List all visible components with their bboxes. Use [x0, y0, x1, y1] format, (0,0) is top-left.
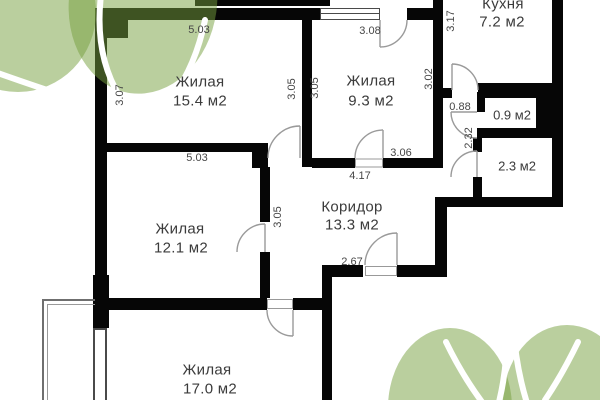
door-arc-room4: [267, 310, 293, 336]
dim-room1-right: 3.05: [286, 78, 298, 99]
room-area-3: 12.1 м2: [154, 240, 208, 257]
dim-room2-bottom: 3.06: [390, 147, 411, 159]
dim-corridor-top: 4.17: [349, 170, 370, 182]
dim-room2-right: 3.02: [423, 68, 435, 89]
dim-passage-width: 0.88: [449, 101, 470, 113]
room-name-2: Жилая: [347, 73, 396, 90]
room-area-1: 15.4 м2: [173, 93, 227, 110]
door-arc-kitchen: [452, 64, 478, 90]
door-arc-balcony: [380, 20, 407, 47]
room-name-1: Жилая: [176, 74, 225, 91]
dim-room3-right: 3.05: [272, 206, 284, 227]
door-leaf-entrance: [366, 267, 397, 276]
dim-kitchen-left: 3.17: [445, 10, 457, 31]
dim-room1-left: 3.07: [114, 84, 126, 105]
door-arc-room1: [268, 126, 300, 158]
kitchen-name: Кухня: [482, 0, 524, 13]
storage1-area: 0.9 м2: [493, 108, 531, 123]
dim-passage-height: 2.32: [463, 127, 475, 148]
door-arc-room3: [237, 224, 265, 252]
dim-room1-bottom: 5.03: [186, 152, 207, 164]
dim-corridor-bottom: 2.67: [341, 256, 362, 268]
corridor-name: Коридор: [321, 199, 382, 216]
door-leaf-room4: [268, 300, 293, 309]
door-arc-entrance: [365, 233, 397, 265]
floor-plan: Жилая 15.4 м2 Жилая 9.3 м2 Кухня 7.2 м2 …: [0, 0, 600, 400]
dim-room2-left: 3.05: [309, 77, 321, 98]
kitchen-area: 7.2 м2: [479, 14, 524, 31]
room-area-2: 9.3 м2: [348, 93, 393, 110]
room-name-3: Жилая: [156, 221, 205, 238]
door-symbols-layer: [0, 0, 600, 400]
storage2-area: 2.3 м2: [498, 159, 536, 174]
dim-room1-top: 5.03: [188, 24, 209, 36]
door-arc-storage2: [451, 151, 477, 177]
door-arc-room2: [355, 130, 383, 158]
door-leaf-room2: [356, 159, 383, 167]
dim-room2-top: 3.08: [359, 25, 380, 37]
room-name-4: Жилая: [183, 362, 232, 379]
corridor-area: 13.3 м2: [325, 217, 379, 234]
room-area-4: 17.0 м2: [183, 381, 237, 398]
